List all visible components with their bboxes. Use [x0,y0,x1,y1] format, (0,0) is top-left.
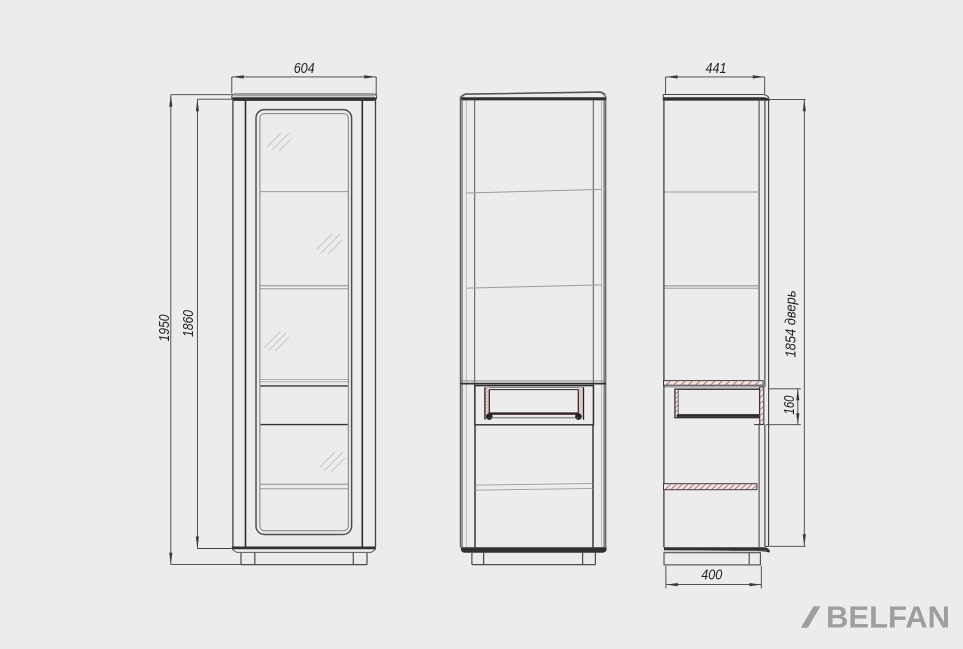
svg-text:1860: 1860 [181,310,197,337]
svg-text:441: 441 [706,61,727,77]
svg-text:400: 400 [701,568,722,584]
svg-text:160: 160 [782,396,798,415]
svg-text:BELFAN: BELFAN [826,600,950,635]
svg-text:1854 дверь: 1854 дверь [784,291,800,358]
svg-text:1950: 1950 [157,315,173,342]
svg-text:604: 604 [294,61,315,77]
